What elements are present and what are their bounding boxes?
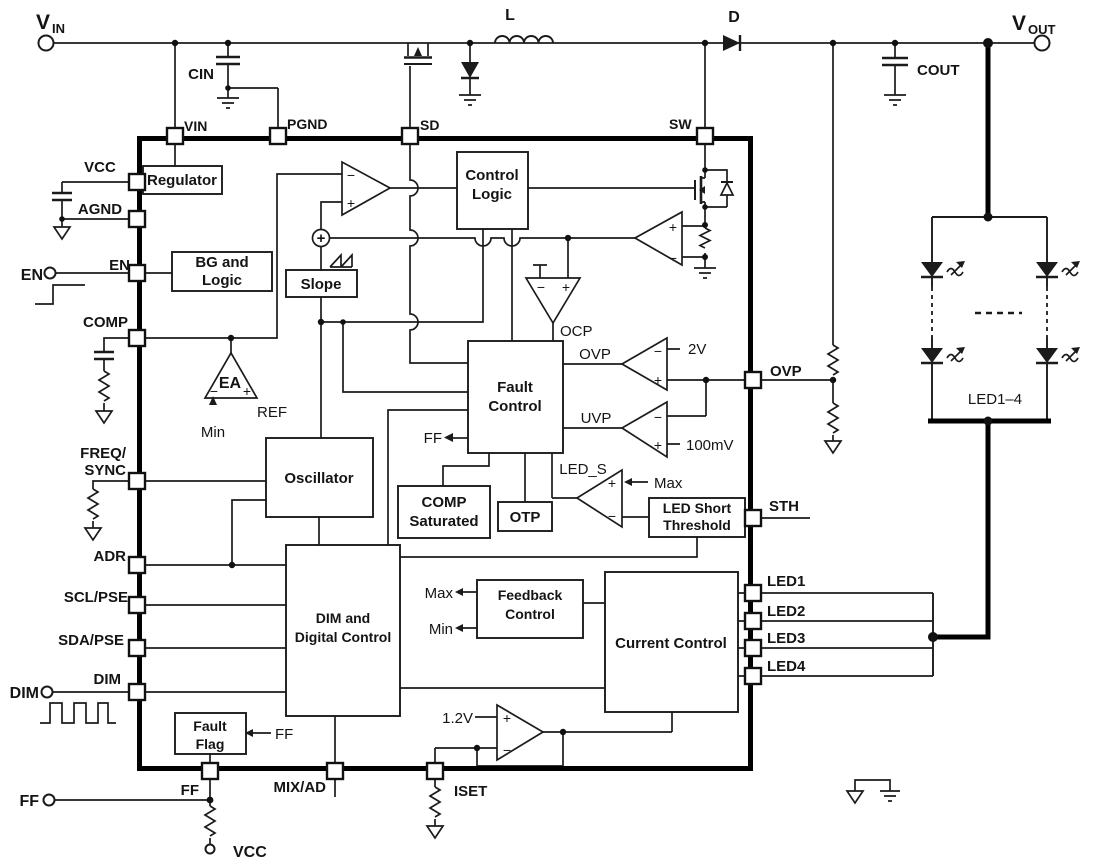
- pin-led3-label: LED3: [767, 630, 805, 647]
- fc-ff-arrow-icon: [444, 433, 453, 442]
- ovp-divider-wire: [761, 43, 833, 441]
- vin-label: V: [36, 11, 50, 34]
- led-out-wires: [738, 593, 745, 676]
- ovp-signal-label: OVP: [579, 346, 611, 363]
- comp-saturated-label-2: Saturated: [409, 513, 478, 530]
- led-icon: [1036, 347, 1080, 363]
- control-logic-label-1: Control: [465, 167, 518, 184]
- pin-agnd-square: [129, 211, 145, 227]
- pin-freq-label: FREQ/: [80, 445, 127, 462]
- comp-ground-icon: [96, 411, 112, 423]
- pin-sth-square: [745, 510, 761, 526]
- ovp-bottom-resistor-icon: [828, 403, 838, 433]
- pin-en-label: EN: [109, 257, 130, 274]
- ovp-minus: −: [654, 343, 662, 359]
- ff-terminal-label: FF: [19, 793, 39, 810]
- ref-label: REF: [257, 404, 287, 421]
- pin-vcc-square: [129, 174, 145, 190]
- slope-label: Slope: [301, 276, 342, 293]
- lst-label-2: Threshold: [663, 517, 731, 533]
- pin-comp-label: COMP: [83, 314, 128, 331]
- vin-terminal: [39, 36, 54, 51]
- block-diagram-page: V IN V OUT CIN COUT L D VIN PGND SD SW V…: [0, 0, 1100, 863]
- opamp-minus: −: [503, 742, 511, 758]
- dim-terminal-label: DIM: [10, 685, 39, 702]
- led-icon: [921, 347, 965, 363]
- ff-flag-label: FF: [275, 726, 293, 743]
- ea-plus: +: [243, 383, 251, 399]
- block-fault-control: [468, 341, 563, 453]
- pin-adr-square: [129, 557, 145, 573]
- ocp-comparator-icon: [526, 278, 580, 323]
- lst-label-1: LED Short: [663, 500, 732, 516]
- vout-terminal: [1035, 36, 1050, 51]
- pin-led1-square: [745, 585, 761, 601]
- body-diode-icon: [721, 182, 733, 195]
- opamp-plus: +: [503, 710, 511, 726]
- min-label: Min: [201, 424, 225, 441]
- otp-label: OTP: [510, 509, 541, 526]
- ocp-minus: −: [537, 279, 545, 295]
- iset-resistor-icon: [430, 787, 440, 817]
- pin-iset-square: [427, 763, 443, 779]
- block-layer: [143, 152, 745, 760]
- comp-resistor-icon: [99, 371, 109, 401]
- vout-label: V: [1012, 12, 1026, 35]
- ff-resistor-icon: [205, 806, 215, 836]
- vcc-terminal: [206, 845, 215, 854]
- pin-led4-square: [745, 668, 761, 684]
- comp-capacitor-icon: [94, 352, 114, 359]
- max-fb-label: Max: [425, 585, 454, 602]
- led-s-label: LED_S: [559, 461, 607, 478]
- ovp-top-resistor-icon: [828, 345, 838, 375]
- dim-block-label-1: DIM and: [316, 610, 370, 626]
- pin-freq-sync-square: [129, 473, 145, 489]
- pin-agnd-label: AGND: [78, 201, 122, 218]
- comp-saturated-label-1: COMP: [422, 494, 467, 511]
- ovp-ground-icon: [825, 441, 841, 453]
- cout-label: COUT: [917, 62, 960, 79]
- pin-en-square: [129, 265, 145, 281]
- power-nmos-icon: [695, 176, 705, 204]
- leds-minus: −: [608, 508, 616, 524]
- pin-sth-label: STH: [769, 498, 799, 515]
- feedback-label-1: Feedback: [498, 587, 563, 603]
- pin-vcc-label: VCC: [84, 159, 116, 176]
- pin-vin-square: [167, 128, 183, 144]
- clamp-earth-icon: [459, 95, 481, 105]
- 2v-label: 2V: [688, 341, 706, 358]
- freq-resistor-icon: [88, 489, 98, 519]
- pin-sda-label: SDA/PSE: [58, 632, 124, 649]
- summing-plus: +: [317, 230, 326, 247]
- pin-sda-pse-square: [129, 640, 145, 656]
- adr-wire: [145, 500, 286, 565]
- dim-terminal: [42, 687, 53, 698]
- pin-sync-label: SYNC: [84, 462, 126, 479]
- ff-fc-label: FF: [424, 430, 442, 447]
- sense-earth-icon: [694, 268, 716, 278]
- vin-sub-label: IN: [52, 21, 65, 36]
- cout-earth-icon: [884, 95, 906, 105]
- pwm-minus: −: [347, 167, 355, 183]
- inductor-label: L: [505, 7, 515, 24]
- schematic-canvas: V IN V OUT CIN COUT L D VIN PGND SD SW V…: [0, 0, 1100, 863]
- uvp-minus: −: [654, 409, 662, 425]
- cin-wire: [228, 43, 278, 128]
- iset-ground-icon: [427, 826, 443, 838]
- pin-ovp-square: [745, 372, 761, 388]
- cin-earth-icon: [217, 98, 239, 108]
- fault-control-label-2: Control: [488, 398, 541, 415]
- cin-label: CIN: [188, 66, 214, 83]
- pin-led4-label: LED4: [767, 658, 806, 675]
- pin-iset-label: ISET: [454, 783, 487, 800]
- pin-scl-label: SCL/PSE: [64, 589, 128, 606]
- pin-mixad-square: [327, 763, 343, 779]
- regulator-label: Regulator: [147, 172, 217, 189]
- en-terminal: [45, 268, 56, 279]
- ocp-label: OCP: [560, 323, 593, 340]
- current-control-label: Current Control: [615, 635, 727, 652]
- pin-sd-label: SD: [420, 117, 439, 133]
- pin-dim-square: [129, 684, 145, 700]
- dim-block-label-2: Digital Control: [295, 629, 391, 645]
- pin-led2-square: [745, 613, 761, 629]
- oscillator-label: Oscillator: [284, 470, 353, 487]
- en-step-waveform: [35, 285, 85, 304]
- pin-adr-label: ADR: [94, 548, 127, 565]
- agnd-ground-icon: [54, 227, 70, 239]
- rectifier-diode-icon: [723, 35, 740, 51]
- dim-pwm-waveform: [40, 703, 116, 723]
- sense-resistor-icon: [700, 228, 710, 248]
- sawtooth-icon: [330, 255, 352, 267]
- cin-capacitor-icon: [216, 57, 240, 64]
- gnd-tie-icon: [847, 780, 900, 803]
- pin-pgnd-label: PGND: [287, 116, 327, 132]
- pin-led2-label: LED2: [767, 603, 805, 620]
- pin-sd-square: [402, 128, 418, 144]
- comp-saturated-wire: [443, 453, 489, 486]
- fb-min-arrow-icon: [455, 624, 463, 632]
- pin-sw-label: SW: [669, 116, 692, 132]
- pin-led3-square: [745, 640, 761, 656]
- led-icon: [921, 261, 965, 277]
- leds-plus: +: [608, 475, 616, 491]
- pin-scl-pse-square: [129, 597, 145, 613]
- pin-mixad-label: MIX/AD: [274, 779, 327, 796]
- clamp-diode-icon: [461, 62, 479, 78]
- fault-control-label-1: Fault: [497, 379, 533, 396]
- led-return-thick: [933, 421, 988, 637]
- ovp-plus: +: [654, 372, 662, 388]
- vout-sub-label: OUT: [1028, 22, 1056, 37]
- led-icon: [1036, 261, 1080, 277]
- ocp-plus: +: [562, 279, 570, 295]
- min-fb-label: Min: [429, 621, 453, 638]
- pin-pgnd-square: [270, 128, 286, 144]
- fault-flag-label-2: Flag: [196, 736, 225, 752]
- 1v2-label: 1.2V: [442, 710, 473, 727]
- disconnect-fet-icon: [404, 43, 432, 64]
- pin-comp-square: [129, 330, 145, 346]
- 100mv-label: 100mV: [686, 437, 734, 454]
- feedback-label-2: Control: [505, 606, 555, 622]
- ea-label: EA: [219, 375, 242, 392]
- fault-flag-label-1: Fault: [193, 718, 227, 734]
- cout-capacitor-icon: [882, 58, 908, 65]
- pin-sw-square: [697, 128, 713, 144]
- freq-ground-icon: [85, 528, 101, 540]
- max-led-label: Max: [654, 475, 683, 492]
- pin-ff-label: FF: [181, 782, 199, 799]
- ff-terminal: [44, 795, 55, 806]
- pin-ff-square: [202, 763, 218, 779]
- uvp-plus: +: [654, 437, 662, 453]
- pin-vin-label: VIN: [184, 118, 207, 134]
- led-string-label: LED1–4: [968, 391, 1022, 408]
- sense-comp-inputs: [682, 226, 705, 257]
- freq-wire: [93, 481, 266, 528]
- diode-label: D: [728, 9, 740, 26]
- ea-minus: −: [210, 383, 218, 399]
- leds-max-arrow-icon: [624, 478, 632, 486]
- inductor-icon: [495, 36, 553, 43]
- pin-dim-label: DIM: [94, 671, 122, 688]
- sense-plus: +: [669, 219, 677, 235]
- vcc-capacitor-icon: [52, 193, 72, 200]
- vcc-terminal-label: VCC: [233, 844, 267, 861]
- pin-ovp-label: OVP: [770, 363, 802, 380]
- sense-minus: −: [669, 250, 677, 266]
- bg-label-2: Logic: [202, 272, 242, 289]
- bg-label-1: BG and: [195, 254, 248, 271]
- control-logic-label-2: Logic: [472, 186, 512, 203]
- fb-max-arrow-icon: [455, 588, 463, 596]
- en-terminal-label: EN: [21, 267, 43, 284]
- pwm-plus: +: [347, 195, 355, 211]
- uvp-signal-label: UVP: [581, 410, 612, 427]
- pin-led1-label: LED1: [767, 573, 805, 590]
- pwm-plus-wire: [321, 202, 342, 230]
